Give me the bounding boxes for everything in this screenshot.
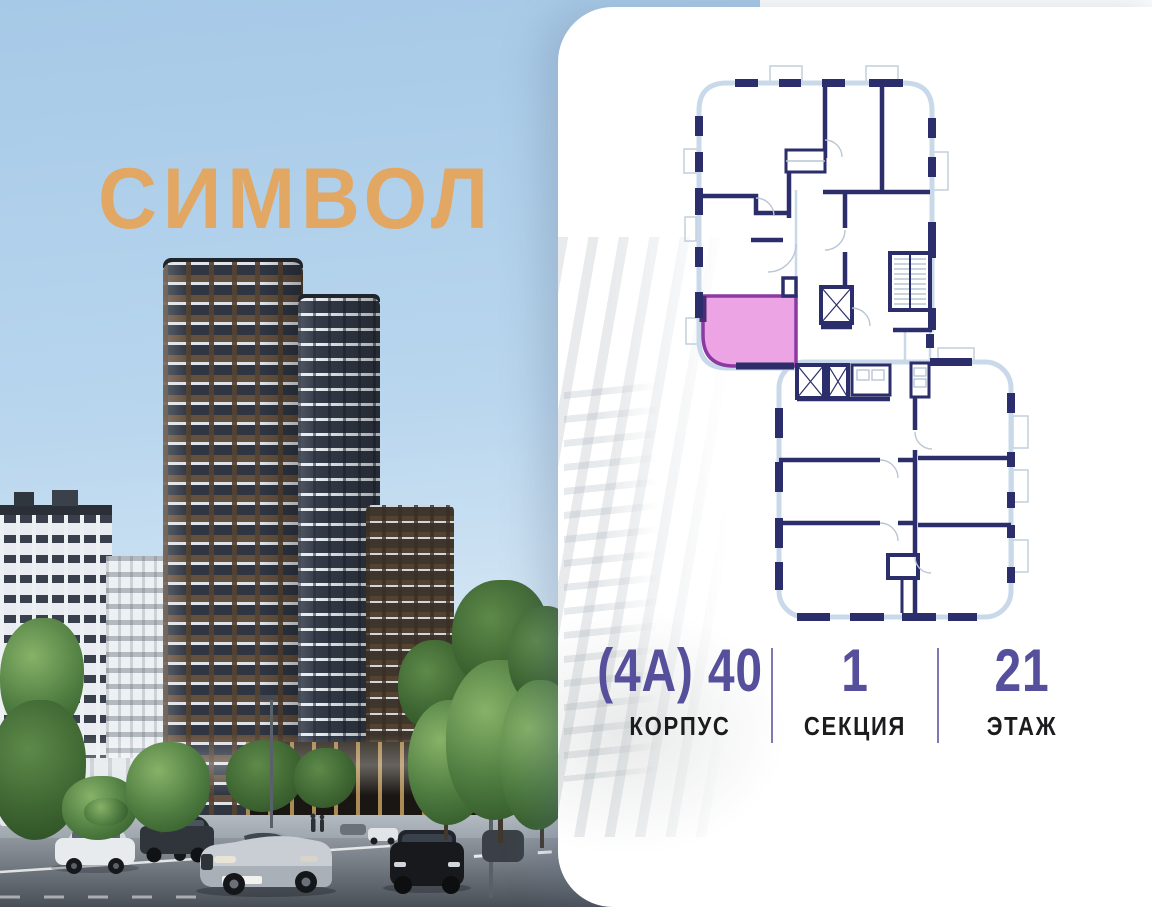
stairwell (890, 253, 930, 310)
entry-notch (783, 278, 796, 296)
apartment-card: СИМВОЛ (0, 0, 1152, 907)
korpus-value: (4А) 40 (592, 640, 768, 702)
roof-structure (52, 490, 78, 506)
silver-sedan (196, 832, 336, 897)
highlighted-apartment[interactable] (703, 296, 796, 366)
distant-car (340, 824, 398, 845)
floor-plan (660, 50, 1060, 650)
info-etazh: 21 ЭТАЖ (912, 640, 1132, 740)
brand-logo: СИМВОЛ (98, 150, 478, 249)
etazh-label: ЭТАЖ (929, 712, 1116, 740)
partial-car (482, 830, 524, 862)
roof-structure (14, 492, 34, 506)
lamp-head (260, 695, 276, 700)
etazh-value: 21 (934, 640, 1110, 702)
